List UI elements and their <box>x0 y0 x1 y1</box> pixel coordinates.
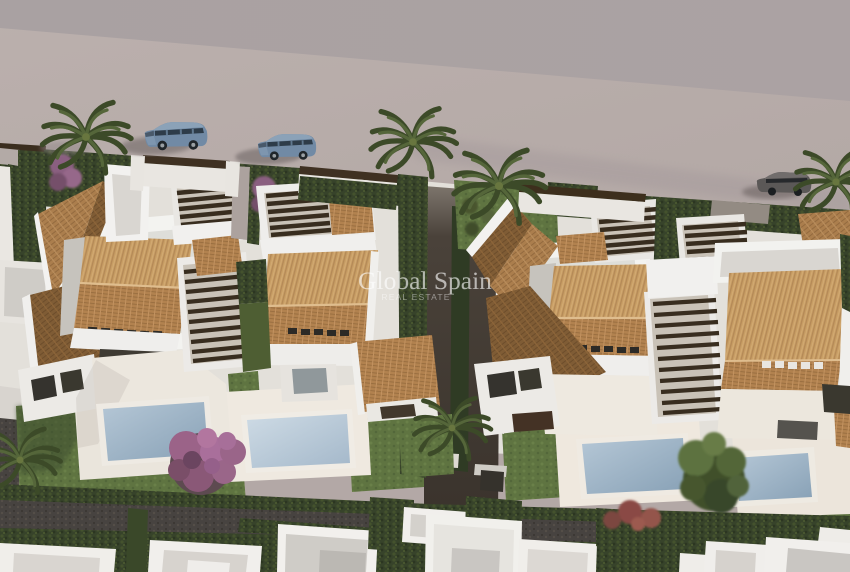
svg-text:Global Spain: Global Spain <box>358 266 492 295</box>
svg-text:REAL ESTATE: REAL ESTATE <box>381 292 450 302</box>
